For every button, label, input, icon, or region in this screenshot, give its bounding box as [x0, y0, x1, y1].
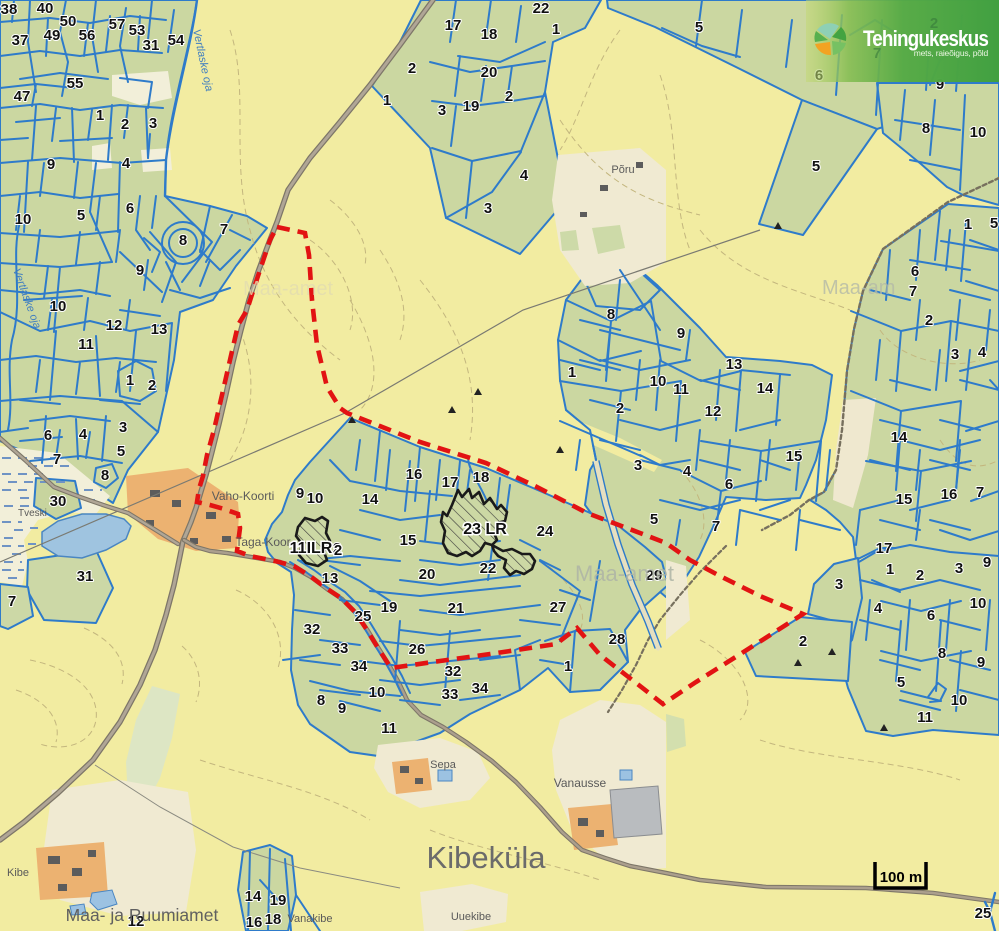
svg-text:22: 22 — [480, 560, 497, 577]
svg-text:5: 5 — [695, 19, 703, 36]
svg-text:11: 11 — [673, 381, 689, 398]
svg-text:3: 3 — [634, 457, 642, 474]
svg-text:3: 3 — [438, 102, 446, 119]
svg-text:Taga-Koor: Taga-Koor — [235, 535, 290, 549]
svg-text:12: 12 — [106, 317, 123, 334]
svg-text:14: 14 — [362, 491, 379, 508]
svg-text:19: 19 — [381, 599, 398, 616]
svg-text:55: 55 — [67, 75, 84, 92]
svg-text:8: 8 — [101, 467, 109, 484]
svg-text:18: 18 — [265, 911, 282, 928]
svg-text:18: 18 — [473, 469, 490, 486]
svg-text:31: 31 — [143, 37, 160, 54]
svg-text:9: 9 — [677, 325, 685, 342]
svg-text:10: 10 — [50, 298, 67, 315]
svg-text:15: 15 — [400, 532, 417, 549]
svg-text:9: 9 — [977, 654, 985, 671]
svg-text:4: 4 — [520, 167, 529, 184]
svg-text:33: 33 — [442, 686, 459, 703]
svg-text:18: 18 — [481, 26, 498, 43]
svg-text:Maa-amet: Maa-amet — [575, 561, 674, 586]
svg-text:14: 14 — [757, 380, 774, 397]
svg-text:50: 50 — [60, 13, 77, 30]
svg-text:20: 20 — [419, 566, 436, 583]
svg-text:2: 2 — [148, 377, 156, 394]
svg-text:19: 19 — [270, 892, 287, 909]
svg-text:8: 8 — [938, 645, 946, 662]
svg-text:56: 56 — [79, 27, 96, 44]
svg-text:10: 10 — [307, 490, 324, 507]
svg-text:2: 2 — [799, 633, 807, 650]
svg-text:5: 5 — [77, 207, 85, 224]
svg-text:1: 1 — [383, 92, 391, 109]
svg-text:2: 2 — [505, 88, 513, 105]
svg-text:7: 7 — [712, 518, 720, 535]
svg-text:11: 11 — [78, 336, 94, 353]
svg-text:3: 3 — [955, 560, 963, 577]
svg-text:31: 31 — [77, 568, 94, 585]
svg-text:1: 1 — [552, 21, 560, 38]
svg-text:12: 12 — [705, 403, 722, 420]
svg-text:9: 9 — [296, 485, 304, 502]
svg-text:25: 25 — [355, 608, 372, 625]
svg-text:49: 49 — [44, 27, 61, 44]
svg-text:8: 8 — [179, 232, 187, 249]
svg-text:Vanausse: Vanausse — [554, 776, 607, 790]
svg-text:14: 14 — [245, 888, 262, 905]
svg-text:3: 3 — [484, 200, 492, 217]
svg-text:4: 4 — [874, 600, 883, 617]
svg-text:33: 33 — [332, 640, 349, 657]
svg-text:9: 9 — [136, 262, 144, 279]
svg-text:54: 54 — [168, 32, 185, 49]
svg-text:17: 17 — [876, 540, 893, 557]
svg-text:2: 2 — [408, 60, 416, 77]
svg-text:6: 6 — [126, 200, 134, 217]
svg-text:14: 14 — [891, 429, 908, 446]
svg-text:15: 15 — [786, 448, 803, 465]
svg-text:Kibe: Kibe — [7, 867, 29, 879]
svg-text:6: 6 — [44, 427, 52, 444]
svg-text:5: 5 — [897, 674, 905, 691]
svg-text:16: 16 — [941, 486, 958, 503]
svg-text:16: 16 — [406, 466, 423, 483]
svg-text:34: 34 — [351, 658, 368, 675]
svg-text:6: 6 — [725, 476, 733, 493]
svg-text:Maa- ja Ruumiamet: Maa- ja Ruumiamet — [66, 905, 219, 925]
svg-text:28: 28 — [609, 631, 626, 648]
svg-text:5: 5 — [650, 511, 658, 528]
svg-text:Vanakibe: Vanakibe — [287, 913, 332, 925]
svg-text:37: 37 — [12, 32, 29, 49]
svg-text:38: 38 — [1, 1, 18, 18]
svg-text:11ILR: 11ILR — [290, 540, 333, 557]
svg-text:9: 9 — [338, 700, 346, 717]
svg-text:8: 8 — [607, 306, 615, 323]
svg-text:10: 10 — [15, 211, 32, 228]
svg-text:2: 2 — [616, 400, 624, 417]
svg-text:7: 7 — [976, 484, 984, 501]
svg-text:2: 2 — [121, 116, 129, 133]
svg-text:16: 16 — [246, 914, 263, 931]
svg-text:8: 8 — [317, 692, 325, 709]
svg-text:7: 7 — [53, 451, 61, 468]
svg-text:10: 10 — [970, 595, 987, 612]
svg-text:Maa-amet: Maa-amet — [243, 278, 333, 300]
svg-text:17: 17 — [442, 474, 459, 491]
svg-text:1: 1 — [96, 107, 104, 124]
svg-text:23 LR: 23 LR — [463, 521, 507, 538]
svg-text:2: 2 — [930, 15, 938, 32]
svg-text:5: 5 — [117, 443, 125, 460]
svg-text:10: 10 — [650, 373, 667, 390]
svg-text:25: 25 — [975, 905, 992, 922]
svg-text:7: 7 — [873, 45, 881, 62]
svg-text:32: 32 — [304, 621, 321, 638]
svg-text:Sepa: Sepa — [430, 759, 457, 771]
svg-text:34: 34 — [472, 680, 489, 697]
svg-text:27: 27 — [550, 599, 567, 616]
svg-text:9: 9 — [983, 554, 991, 571]
svg-text:13: 13 — [151, 321, 168, 338]
svg-text:5: 5 — [990, 215, 998, 232]
svg-text:1: 1 — [564, 658, 572, 675]
svg-text:6: 6 — [927, 607, 935, 624]
svg-text:24: 24 — [537, 523, 554, 540]
svg-text:4: 4 — [978, 344, 987, 361]
svg-text:10: 10 — [951, 692, 968, 709]
svg-text:15: 15 — [896, 491, 913, 508]
svg-text:Vaho-Koorti: Vaho-Koorti — [212, 489, 274, 503]
svg-text:3: 3 — [951, 346, 959, 363]
svg-text:1: 1 — [886, 561, 894, 578]
svg-text:3: 3 — [149, 115, 157, 132]
svg-text:7: 7 — [8, 593, 16, 610]
svg-text:30: 30 — [50, 493, 67, 510]
svg-text:19: 19 — [463, 98, 480, 115]
svg-text:3: 3 — [835, 576, 843, 593]
svg-text:10: 10 — [970, 124, 987, 141]
svg-text:Kibeküla: Kibeküla — [427, 840, 547, 875]
svg-text:32: 32 — [445, 663, 462, 680]
svg-text:22: 22 — [533, 0, 550, 17]
svg-text:17: 17 — [445, 17, 462, 34]
svg-text:40: 40 — [37, 0, 54, 17]
svg-text:1: 1 — [568, 364, 576, 381]
svg-text:Tveski: Tveski — [18, 508, 47, 519]
svg-text:2: 2 — [925, 312, 933, 329]
svg-text:21: 21 — [448, 600, 465, 617]
svg-text:26: 26 — [409, 641, 426, 658]
svg-text:7: 7 — [909, 283, 917, 300]
svg-text:11: 11 — [917, 709, 933, 726]
svg-text:mets, raieõigus, põld: mets, raieõigus, põld — [914, 48, 989, 58]
svg-text:20: 20 — [481, 64, 498, 81]
svg-text:1: 1 — [126, 372, 134, 389]
svg-text:7: 7 — [220, 221, 228, 238]
svg-text:11: 11 — [381, 720, 397, 737]
svg-text:Uuekibe: Uuekibe — [451, 911, 491, 923]
svg-text:1: 1 — [964, 216, 972, 233]
svg-text:6: 6 — [911, 263, 919, 280]
svg-text:100 m: 100 m — [880, 869, 923, 886]
svg-text:10: 10 — [369, 684, 386, 701]
svg-text:8: 8 — [922, 120, 930, 137]
svg-text:4: 4 — [122, 155, 131, 172]
svg-text:Põru: Põru — [611, 164, 634, 176]
svg-text:47: 47 — [14, 88, 31, 105]
svg-text:4: 4 — [683, 463, 692, 480]
svg-text:13: 13 — [726, 356, 743, 373]
svg-text:2: 2 — [334, 542, 342, 559]
svg-text:13: 13 — [322, 570, 339, 587]
svg-text:5: 5 — [812, 158, 820, 175]
svg-text:4: 4 — [79, 426, 88, 443]
svg-text:2: 2 — [916, 567, 924, 584]
svg-text:3: 3 — [119, 419, 127, 436]
svg-text:57: 57 — [109, 16, 126, 33]
svg-text:Maa-am: Maa-am — [822, 277, 895, 299]
svg-text:9: 9 — [47, 156, 55, 173]
